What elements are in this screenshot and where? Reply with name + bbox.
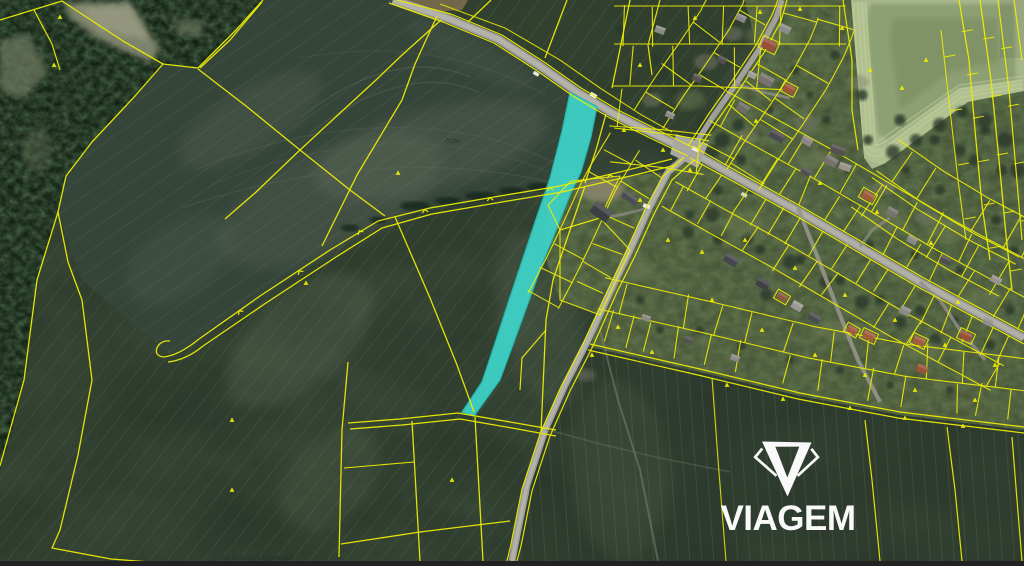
svg-text:VIAGEM: VIAGEM — [720, 499, 855, 538]
svg-text:Na sedleckých kopaninách: Na sedleckých kopaninách — [222, 556, 293, 561]
svg-text:ČÚZK: ČÚZK — [445, 138, 460, 145]
